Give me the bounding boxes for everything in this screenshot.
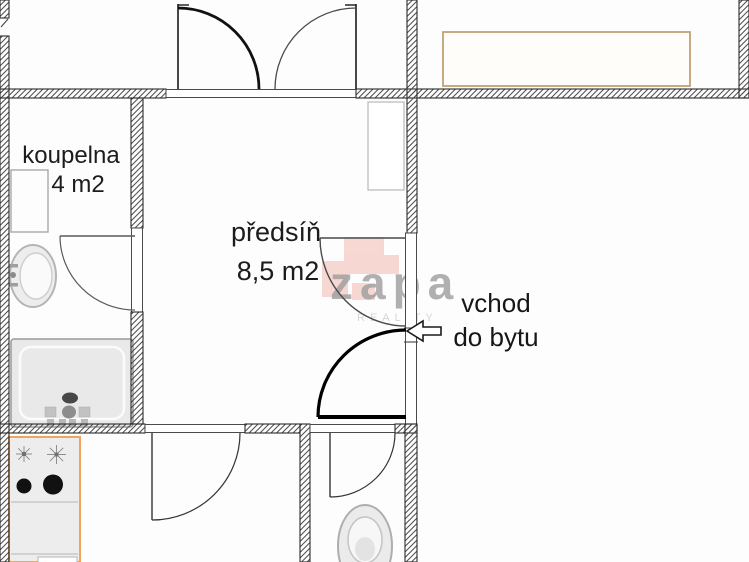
wall-vertical-center [407, 0, 417, 233]
watermark-brand-text: zapa [330, 257, 460, 309]
door-lintel-wc [310, 425, 395, 433]
wall-bottom-mid [245, 424, 300, 433]
faucet-mark [10, 272, 16, 278]
hotplate [43, 475, 63, 495]
wall-left-main [0, 36, 9, 562]
wall-left-top [0, 0, 9, 18]
door-lintel-bottom-left [145, 425, 245, 433]
floor-plan-drawing: zapa REALITY [0, 0, 749, 562]
door-lintel-top [166, 90, 356, 98]
hall-cabinet [368, 102, 404, 190]
hotplate [17, 479, 32, 494]
bathroom-area-label: 4 m2 [51, 171, 104, 198]
kitchen-stove [9, 437, 80, 562]
bathtub [11, 339, 133, 427]
wall-bathroom-upper [131, 98, 143, 228]
bed-outline [443, 32, 690, 86]
hall-area-label: 8,5 m2 [237, 256, 320, 286]
entrance-label-line1: vchod [461, 288, 530, 318]
wall-right [739, 0, 749, 98]
tub-faucet [62, 406, 76, 419]
wall-bathroom-lower [131, 312, 143, 424]
hall-name-label: předsíň [231, 217, 321, 247]
wall-right-lower [405, 424, 417, 562]
sink [9, 245, 56, 307]
faucet-mark [9, 264, 18, 268]
wall-wc-left [300, 424, 310, 562]
bathroom-door-jamb [132, 228, 143, 312]
wall-bottom-bathroom [0, 424, 145, 433]
faucet-mark [9, 283, 18, 287]
bathroom-name-label: koupelna [22, 142, 120, 169]
drain [62, 393, 78, 404]
floor-plan: zapa REALITY [0, 0, 749, 562]
entrance-label-line2: do bytu [453, 322, 538, 352]
washing-machine [11, 170, 48, 232]
wall-top-left [0, 89, 166, 98]
